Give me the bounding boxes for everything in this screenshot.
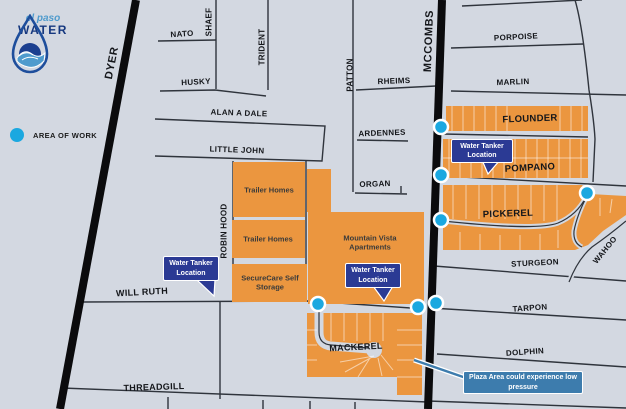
street-label-robin-hood: ROBIN HOOD <box>220 204 229 259</box>
street-label-marlin: MARLIN <box>496 77 529 87</box>
mountain-vista-area <box>308 212 424 304</box>
water-drop-icon <box>8 14 52 76</box>
street-label-trident: TRIDENT <box>258 29 267 66</box>
mountain-vista-strip <box>307 169 331 212</box>
street-label-husky: HUSKY <box>181 77 211 88</box>
street-label-rheims: RHEIMS <box>377 76 410 86</box>
water-tanker-callout-pompano: Water Tanker Location <box>451 139 513 163</box>
street-label-ardennes: ARDENNES <box>358 128 406 139</box>
mackerel-area <box>307 313 422 395</box>
area-of-work-marker <box>311 297 325 311</box>
street-label-flounder: FLOUNDER <box>502 113 558 126</box>
area-of-work-marker <box>429 296 443 310</box>
street-label-nato: NATO <box>170 29 194 40</box>
area-label-trailer-homes-1: Trailer Homes <box>239 185 299 194</box>
area-label-mountain-vista: Mountain Vista Apartments <box>335 234 405 253</box>
street-label-mccombs: MCCOMBS <box>422 10 436 73</box>
area-of-work-marker <box>580 186 594 200</box>
el-paso-water-logo: el paso WATER <box>8 14 78 37</box>
area-of-work-map: el paso WATER AREA OF WORK DYER MCCOMBS … <box>0 0 626 409</box>
street-label-organ: ORGAN <box>359 179 391 189</box>
plaza-low-pressure-callout: Plaza Area could experience low pressure <box>463 371 583 394</box>
street-label-shaef: SHAEF <box>205 8 214 37</box>
street-label-threadgill: THREADGILL <box>123 381 184 393</box>
street-label-alan-a-dale: ALAN A DALE <box>210 108 267 119</box>
area-of-work-marker <box>434 120 448 134</box>
dyer-road <box>60 0 136 409</box>
water-tanker-callout-mountain-vista: Water Tanker Location <box>345 263 401 288</box>
area-label-securecare: SecureCare Self Storage <box>241 274 299 293</box>
area-of-work-marker <box>434 168 448 182</box>
legend-label: AREA OF WORK <box>33 131 97 140</box>
area-of-work-marker <box>434 213 448 227</box>
area-of-work-legend-icon <box>10 128 24 142</box>
area-of-work-marker <box>411 300 425 314</box>
street-label-little-john: LITTLE JOHN <box>209 145 264 156</box>
street-label-pickerel: PICKEREL <box>483 208 534 221</box>
water-tanker-callout-will-ruth: Water Tanker Location <box>163 256 219 281</box>
area-label-trailer-homes-2: Trailer Homes <box>238 234 298 243</box>
street-label-patton: PATTON <box>346 58 355 91</box>
legend: AREA OF WORK <box>10 128 97 142</box>
